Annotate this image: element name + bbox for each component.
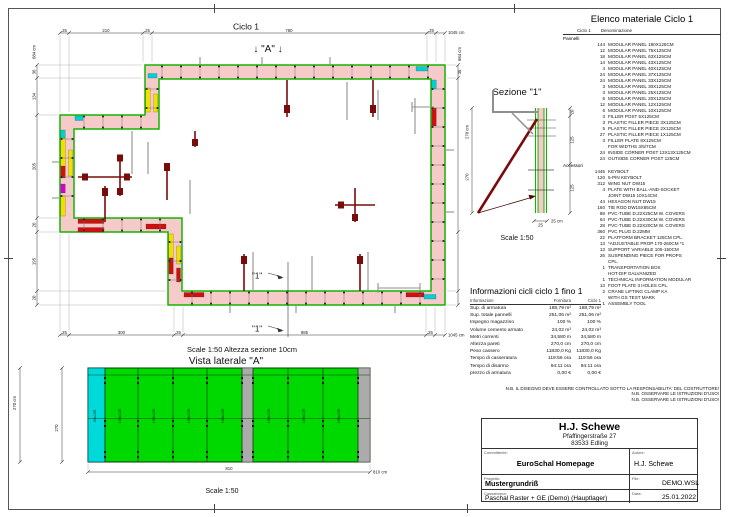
item-name: OUTSIDE CORNER POST 125CM [608,156,679,162]
col-cycle: Ciclo 1 [577,28,591,33]
fold-mark-bottom-right [467,504,468,513]
title-block-company: H.J. Schewe Pfaffingerstraße 27 83533 Ed… [482,419,697,449]
info-cycle-value: 119:56 ora [571,355,601,362]
company-name: H.J. Schewe [482,419,697,433]
info-supply-value: 34,580 m [535,334,571,341]
client-value: EuroSchal Homepage [482,459,629,468]
svg-text:190x125: 190x125 [337,409,341,424]
material-list: Elenco materiale Ciclo 1 Ciclo 1 Denomin… [563,14,721,307]
client-cell: Committente: EuroSchal Homepage [482,449,630,474]
company-street: Pfaffingerstraße 27 [482,433,697,440]
author-cell: Autore: H.J. Schewe [630,449,697,474]
file-value: DEMO.WSL [662,480,699,487]
cut-1-label-upper: "1" [252,272,262,281]
svg-text:25: 25 [145,28,150,33]
svg-text:25: 25 [428,330,433,335]
title-block-row-project: Progetto: Mustergrundriß File: DEMO.WSL [482,475,697,490]
svg-text:810: 810 [225,466,233,471]
info-label: prezzo di armatura [470,370,535,377]
info-title: Informazioni cicli ciclo 1 fino 1 [470,286,601,296]
info-cycle-value: 34,580 m [571,334,601,341]
svg-text:36: 36 [32,69,37,74]
title-block-row-formwork: Cassaforma: Paschal Raster + GE (Demo) (… [482,490,697,503]
info-label: Peso cassero [470,348,535,355]
title-block-row-client: Committente: EuroSchal Homepage Autore: … [482,449,697,475]
info-supply-value: 188,79 m² [535,305,571,312]
group-panels-label: Pannelli [563,35,721,42]
project-cell: Progetto: Mustergrundriß [482,475,630,489]
cut-marker-a: ↓ "A" ↓ [253,44,282,55]
svg-text:190x125: 190x125 [187,409,191,424]
info-supply-value: 251,06 m² [535,312,571,319]
client-label: Committente: [484,450,508,455]
section-prop [478,119,537,213]
svg-text:190x125: 190x125 [267,409,271,424]
file-label: File: [632,476,640,481]
date-value: 25.01.2022 [662,494,696,501]
info-row: prezzo di armatura 0,00 € 0,00 € [470,370,601,377]
col-fornitura: Fornitura [535,298,571,303]
info-cycle-value: 188,79 m² [571,305,601,312]
info-cycle-value: 24,02 m³ [571,327,601,334]
fold-mark-top-right [514,4,515,13]
info-row: Altezza pareti 270,0 cm 270,0 cm [470,341,601,348]
plan-title: Ciclo 1 [233,22,259,32]
author-label: Autore: [632,450,645,455]
svg-text:25: 25 [62,330,67,335]
formwork-cell: Cassaforma: Paschal Raster + GE (Demo) (… [482,490,630,503]
svg-text:810 cm: 810 cm [373,470,388,475]
svg-text:43x125: 43x125 [93,410,97,422]
svg-text:205: 205 [32,162,37,170]
group-accessories-label: Accessori [563,162,721,169]
svg-text:25: 25 [538,223,543,228]
info-row: Tempo di disarmo 94:11 ora 94:11 ora [470,363,601,370]
info-columns: Informazioni Fornitura Ciclo 1 [470,298,601,305]
info-supply-value: 94:11 ora [535,363,571,370]
company-city: 83533 Edling [482,440,697,447]
info-row: Sup. di armatura 188,79 m² 188,79 m² [470,305,601,312]
svg-text:1045 cm: 1045 cm [448,333,465,338]
item-name: SUSPENDING PIECE FOR PROPS [608,253,682,259]
author-value: H.J. Schewe [634,461,673,468]
svg-text:25: 25 [429,28,434,33]
filler-pieces [61,67,437,300]
info-label: Tempo di casseratura [470,355,535,362]
svg-text:190x125: 190x125 [221,409,225,424]
svg-text:270 cm: 270 cm [12,396,17,411]
svg-text:134: 134 [32,92,37,100]
col-denomination: Denominazione [601,28,632,33]
info-cycle-value: 11830,0 Kg [571,348,601,355]
info-label: Impegno magazzino [470,319,535,326]
info-label: Tempo di disarmo [470,363,535,370]
section-title: Sezione "1" [493,87,542,98]
info-label: Sup. di armatura [470,305,535,312]
info-supply-value: 11830,0 Kg [535,348,571,355]
svg-text:270: 270 [465,173,470,181]
plan-scale-note: Scale 1:50 Altezza sezione 10cm [187,345,297,354]
cycle-info-table: Informazioni cicli ciclo 1 fino 1 Inform… [470,286,601,377]
info-cycle-value: 251,06 m² [571,312,601,319]
info-cycle-value: 0,00 € [571,370,601,377]
info-supply-value: 100 % [535,319,571,326]
svg-text:20: 20 [32,295,37,300]
svg-text:885: 885 [301,330,309,335]
file-cell: File: DEMO.WSL [630,475,697,489]
elevation-title: Vista laterale "A" [189,356,264,367]
note-line: N.B. OSSERVARE LE ISTRUZIONI D'USO! [460,397,719,402]
formwork-value: Paschal Raster + GE (Demo) (Hauptlager) [485,495,607,502]
info-row: Impegno magazzino 100 % 100 % [470,319,601,326]
info-label: Metri correnti [470,334,535,341]
svg-text:780: 780 [285,28,293,33]
elevation-panels: 43x125 190x125 190x125 190x125 190x125 1… [88,368,370,462]
svg-text:25 cm: 25 cm [551,219,563,224]
info-cycle-value: 94:11 ora [571,363,601,370]
plan-view: Ciclo 1 ↓ "A" ↓ [0,0,465,338]
info-cycle-value: 100 % [571,319,601,326]
info-row: Volume cemento armato 24,02 m³ 24,02 m³ [470,327,601,334]
info-supply-value: 119:56 ora [535,355,571,362]
svg-text:190x125: 190x125 [118,409,122,424]
section-scale: Scale 1:50 [500,235,533,242]
elevation-scale: Scale 1:50 [205,488,238,495]
info-label: Sup. totale pannelli [470,312,535,319]
col-ciclo: Ciclo 1 [571,298,601,303]
svg-text:25: 25 [176,330,181,335]
date-label: Data: [632,491,642,496]
info-row: Peso cassero 11830,0 Kg 11830,0 Kg [470,348,601,355]
prop-symbols [78,80,376,291]
svg-text:270 cm: 270 cm [465,125,470,140]
svg-text:195: 195 [32,257,37,265]
svg-text:1045 cm: 1045 cm [448,30,465,35]
svg-text:190x125: 190x125 [302,409,306,424]
col-informazioni: Informazioni [470,298,535,303]
svg-text:36: 36 [457,69,462,74]
nb-notes: N.B. IL DISEGNO DEVE ESSERE CONTROLLATO … [460,386,719,402]
svg-text:190x125: 190x125 [152,409,156,424]
material-list-title: Elenco materiale Ciclo 1 [563,14,721,25]
svg-text:270: 270 [54,424,59,432]
info-supply-value: 24,02 m³ [535,327,571,334]
item-name: ASSEMBLY TOOL [608,301,646,307]
info-supply-value: 0,00 € [535,370,571,377]
svg-text:25: 25 [62,28,67,33]
cut-1-label-lower: "1" [252,325,262,334]
info-label: Volume cemento armato [470,327,535,334]
info-cycle-value: 270,0 cm [571,341,601,348]
elevation-view: Scale 1:50 Altezza sezione 10cm Vista la… [0,338,465,500]
info-row: Metri correnti 34,580 m 34,580 m [470,334,601,341]
svg-text:20: 20 [32,222,37,227]
svg-text:300: 300 [118,330,126,335]
info-supply-value: 270,0 cm [535,341,571,348]
drawing-sheet: Ciclo 1 ↓ "A" ↓ [0,0,730,517]
material-list-columns: Ciclo 1 Denominazione [563,28,721,35]
title-block: H.J. Schewe Pfaffingerstraße 27 83533 Ed… [481,418,698,502]
project-value: Mustergrundriß [485,479,538,488]
svg-text:210: 210 [102,28,110,33]
svg-text:684 cm: 684 cm [457,47,462,62]
svg-text:684 cm: 684 cm [32,45,37,60]
fold-mark-bottom-left [214,504,215,513]
info-row: Sup. totale pannelli 251,06 m² 251,06 m² [470,312,601,319]
info-row: Tempo di casseratura 119:56 ora 119:56 o… [470,355,601,362]
date-cell: Data: 25.01.2022 [630,490,697,503]
info-label: Altezza pareti [470,341,535,348]
